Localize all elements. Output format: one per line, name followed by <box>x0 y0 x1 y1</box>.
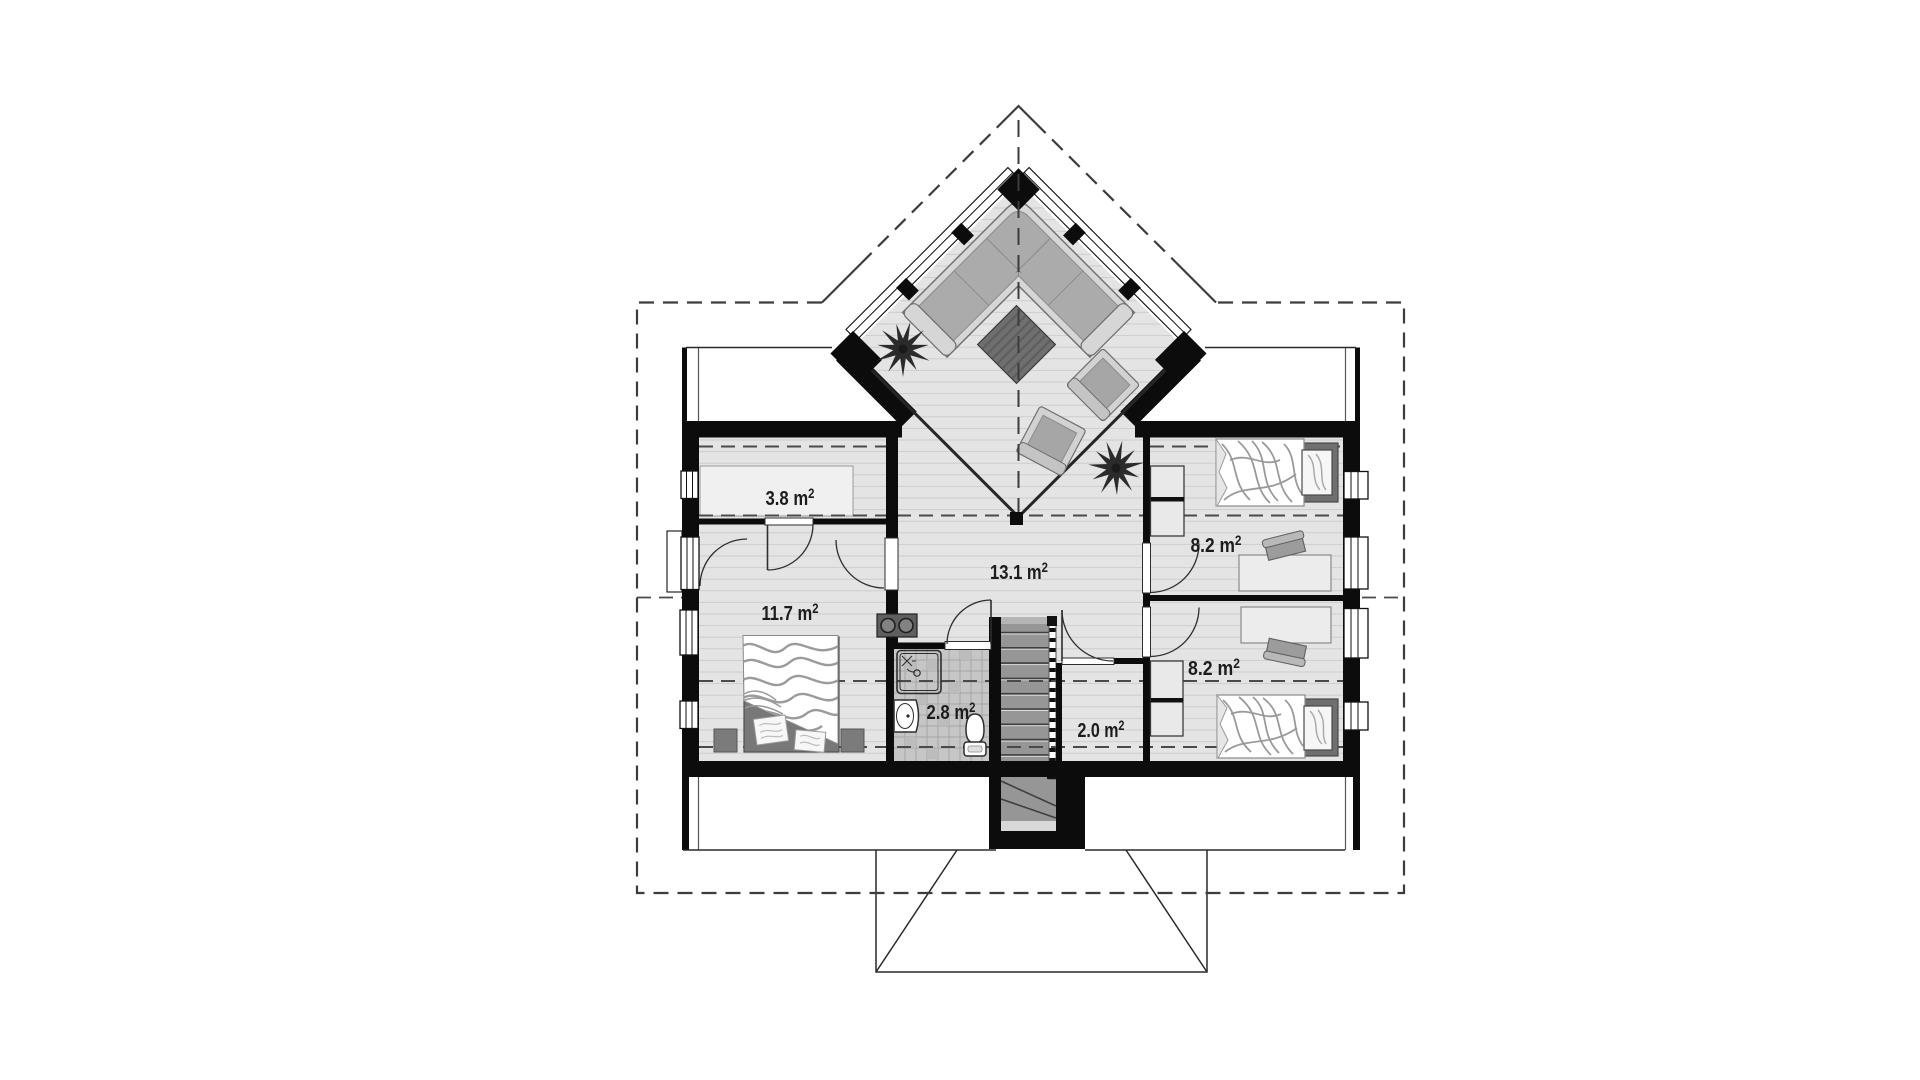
svg-text:2.0 m2: 2.0 m2 <box>1078 717 1125 742</box>
svg-text:8.2 m2: 8.2 m2 <box>1191 532 1242 557</box>
svg-text:3.8 m2: 3.8 m2 <box>766 485 815 510</box>
svg-text:11.7 m2: 11.7 m2 <box>762 600 819 625</box>
svg-text:2.8 m2: 2.8 m2 <box>927 699 976 724</box>
svg-text:13.1 m2: 13.1 m2 <box>990 559 1048 584</box>
svg-text:8.2 m2: 8.2 m2 <box>1188 655 1240 680</box>
